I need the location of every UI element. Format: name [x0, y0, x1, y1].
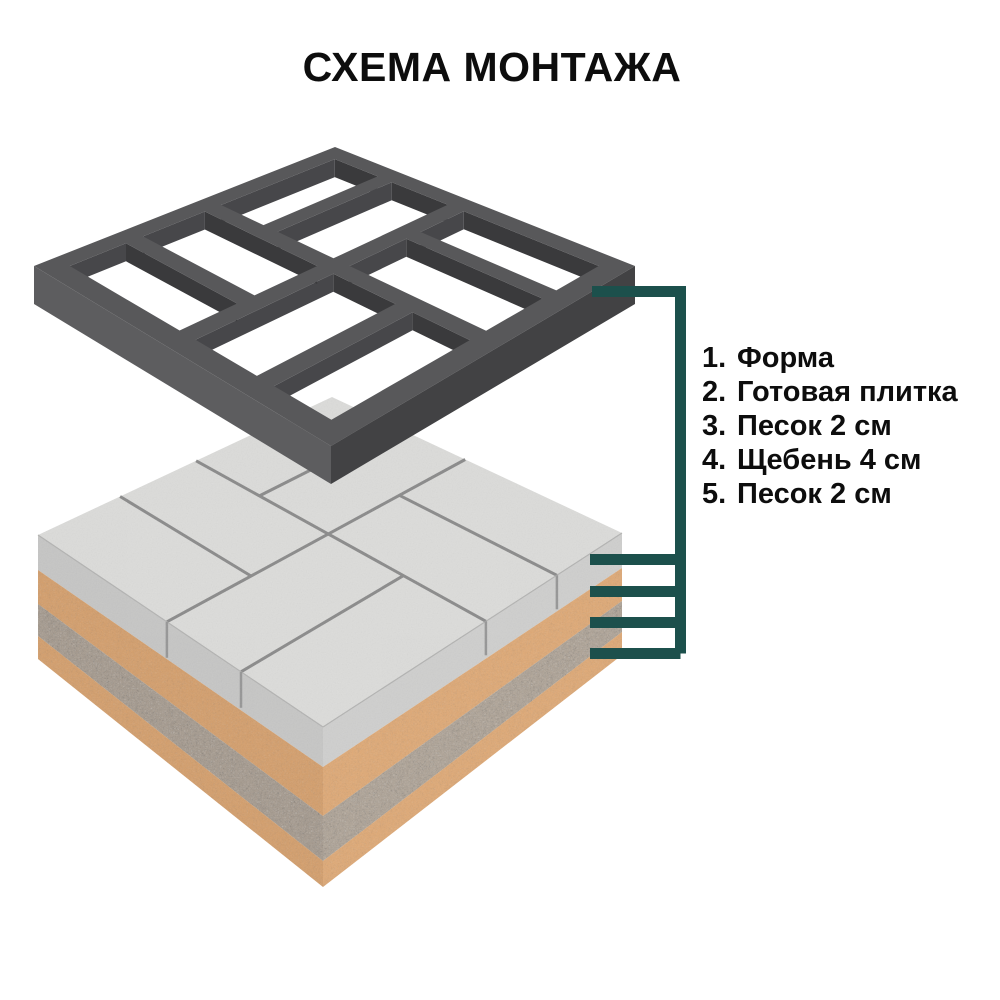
legend-label: Готовая плитка [737, 376, 958, 408]
legend-number: 4. [702, 443, 731, 477]
legend-label: Форма [737, 342, 834, 374]
legend-item-sand-top: 3.Песок 2 см [702, 409, 958, 443]
legend-number: 3. [702, 409, 731, 443]
legend-item-form: 1.Форма [702, 341, 958, 375]
legend-label: Щебень 4 см [737, 444, 922, 476]
legend-label: Песок 2 см [737, 410, 892, 442]
legend: 1.Форма 2.Готовая плитка 3.Песок 2 см 4.… [702, 341, 958, 511]
legend-number: 2. [702, 375, 731, 409]
legend-item-sand-bottom: 5.Песок 2 см [702, 477, 958, 511]
legend-item-gravel: 4.Щебень 4 см [702, 443, 958, 477]
installation-scheme-page: СХЕМА МОНТАЖА 1.Форма 2.Готовая плитка 3… [0, 0, 1000, 1000]
legend-item-finished-tile: 2.Готовая плитка [702, 375, 958, 409]
legend-number: 5. [702, 477, 731, 511]
paver-mold-form [34, 147, 635, 484]
legend-label: Песок 2 см [737, 478, 892, 510]
legend-number: 1. [702, 341, 731, 375]
